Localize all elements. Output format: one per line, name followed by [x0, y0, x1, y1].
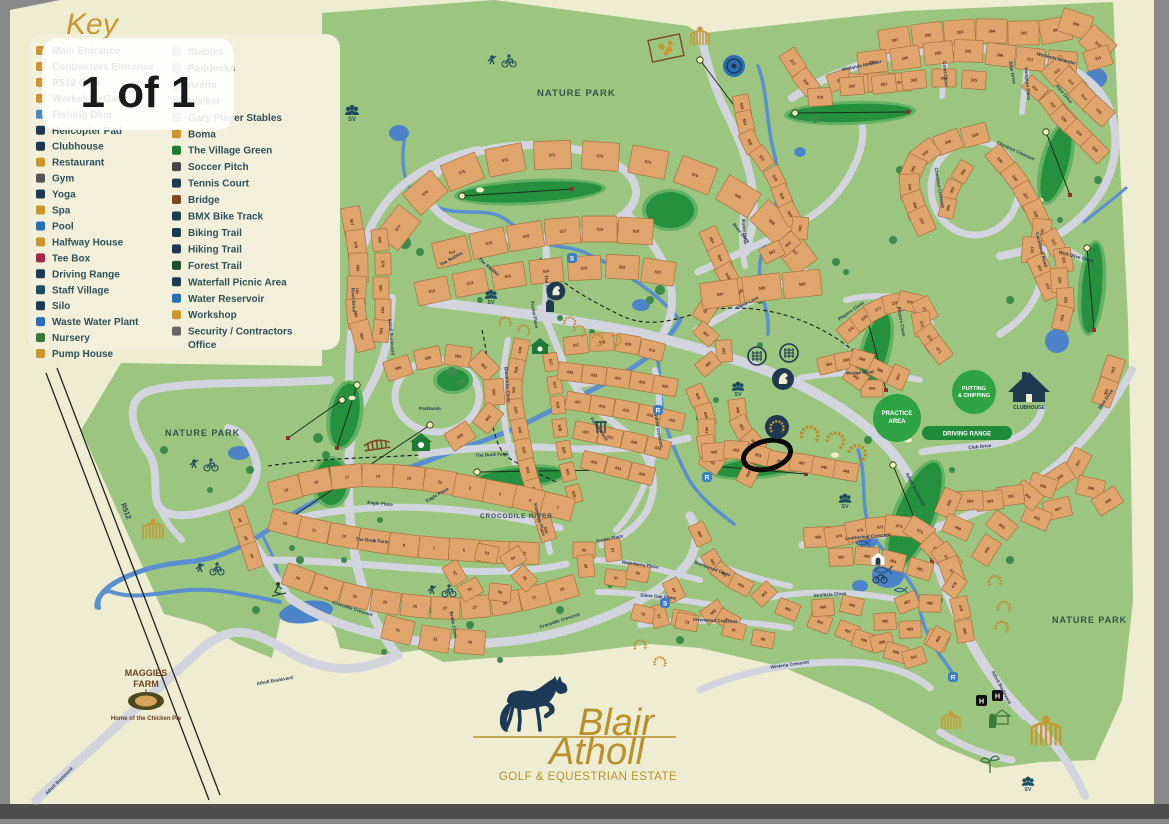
- svg-text:485: 485: [927, 600, 935, 605]
- svg-text:483: 483: [863, 553, 871, 559]
- svg-text:SV: SV: [348, 117, 356, 123]
- svg-text:Gym: Gym: [52, 174, 74, 185]
- svg-text:The Village Green: The Village Green: [188, 146, 272, 157]
- svg-text:517: 517: [559, 228, 567, 234]
- svg-text:490: 490: [882, 618, 890, 623]
- svg-text:319: 319: [817, 94, 825, 99]
- svg-text:R: R: [656, 408, 661, 415]
- svg-text:& CHIPPING: & CHIPPING: [958, 393, 990, 399]
- svg-text:Yoga: Yoga: [52, 190, 76, 201]
- svg-text:392: 392: [721, 347, 727, 355]
- svg-text:563: 563: [378, 327, 384, 335]
- svg-text:325: 325: [970, 77, 978, 83]
- svg-text:DRIVING RANGE: DRIVING RANGE: [943, 432, 991, 438]
- svg-text:Security / Contractors: Security / Contractors: [188, 327, 293, 338]
- svg-text:445: 445: [710, 449, 718, 455]
- svg-text:522: 522: [619, 264, 627, 269]
- svg-text:H: H: [995, 694, 1000, 701]
- svg-text:Forest Trail: Forest Trail: [188, 261, 242, 272]
- svg-text:582: 582: [379, 285, 384, 292]
- svg-text:SV: SV: [841, 504, 849, 510]
- svg-text:482: 482: [838, 554, 846, 559]
- svg-text:PUTTING: PUTTING: [962, 386, 986, 392]
- svg-text:Biking Trail: Biking Trail: [188, 228, 242, 239]
- svg-text:1 of 1: 1 of 1: [81, 68, 196, 117]
- svg-text:536: 536: [512, 387, 517, 394]
- svg-text:NATURE PARK: NATURE PARK: [1052, 615, 1127, 625]
- svg-text:Hiking Trail: Hiking Trail: [188, 244, 242, 255]
- svg-text:Office: Office: [188, 340, 217, 351]
- svg-text:Halfway House: Halfway House: [52, 237, 124, 248]
- svg-text:Parklands: Parklands: [419, 406, 441, 411]
- svg-text:331: 331: [1029, 246, 1034, 254]
- svg-text:MAGGIES: MAGGIES: [125, 668, 168, 678]
- svg-text:Pump House: Pump House: [52, 349, 114, 360]
- svg-text:518: 518: [597, 227, 604, 232]
- svg-text:583: 583: [381, 307, 386, 314]
- svg-text:344: 344: [907, 184, 912, 192]
- svg-text:S: S: [570, 256, 575, 263]
- svg-text:R: R: [951, 675, 956, 682]
- svg-text:NATURE PARK: NATURE PARK: [165, 428, 240, 438]
- svg-text:579: 579: [380, 261, 385, 269]
- svg-text:324: 324: [1057, 277, 1062, 285]
- svg-text:59: 59: [582, 548, 587, 553]
- svg-text:SV: SV: [487, 300, 495, 306]
- svg-text:305: 305: [965, 48, 973, 53]
- svg-text:Silo: Silo: [52, 301, 70, 312]
- svg-text:441: 441: [704, 427, 709, 435]
- svg-text:Waste Water Plant: Waste Water Plant: [52, 317, 139, 328]
- svg-text:Nursery: Nursery: [52, 333, 90, 344]
- svg-text:Home of the Chicken Pie: Home of the Chicken Pie: [111, 716, 182, 722]
- svg-text:Boma: Boma: [188, 129, 216, 140]
- svg-text:Tee Box: Tee Box: [52, 253, 91, 264]
- svg-text:Workshop: Workshop: [188, 310, 237, 321]
- svg-text:523: 523: [581, 265, 589, 270]
- svg-text:364: 364: [989, 28, 997, 33]
- svg-text:580: 580: [355, 265, 360, 273]
- svg-text:Spa: Spa: [52, 206, 71, 217]
- svg-text:489: 489: [907, 626, 915, 631]
- svg-text:452: 452: [732, 447, 740, 453]
- svg-text:SV: SV: [1024, 787, 1032, 793]
- svg-text:Pool: Pool: [52, 221, 74, 232]
- svg-text:Water Reservoir: Water Reservoir: [188, 294, 264, 305]
- svg-text:573: 573: [549, 152, 557, 157]
- svg-text:486: 486: [819, 604, 827, 610]
- svg-text:GOLF & EQUESTRIAN ESTATE: GOLF & EQUESTRIAN ESTATE: [499, 771, 677, 783]
- svg-text:SV: SV: [734, 392, 742, 398]
- svg-text:Soccer Pitch: Soccer Pitch: [188, 162, 249, 173]
- svg-text:AREA: AREA: [888, 419, 906, 425]
- svg-text:PRACTICE: PRACTICE: [882, 411, 913, 417]
- svg-text:Bridge: Bridge: [188, 195, 220, 206]
- svg-text:BMX Bike Track: BMX Bike Track: [188, 212, 263, 223]
- svg-text:572: 572: [596, 153, 604, 159]
- svg-text:Key: Key: [66, 8, 120, 41]
- svg-text:R: R: [705, 475, 710, 482]
- svg-text:NATURE PARK: NATURE PARK: [537, 88, 616, 99]
- svg-text:303: 303: [956, 29, 964, 35]
- svg-text:FARM: FARM: [133, 679, 159, 689]
- svg-text:Staff Village: Staff Village: [52, 285, 109, 296]
- svg-text:384: 384: [967, 498, 975, 503]
- svg-text:Clubhouse: Clubhouse: [52, 142, 104, 153]
- svg-text:300: 300: [848, 83, 856, 89]
- svg-text:353: 353: [1063, 297, 1068, 305]
- svg-text:Tennis Court: Tennis Court: [188, 179, 250, 190]
- svg-text:Driving Range: Driving Range: [52, 269, 120, 280]
- svg-text:561: 561: [797, 224, 803, 232]
- svg-text:592: 592: [491, 388, 497, 396]
- svg-text:307: 307: [1021, 30, 1029, 35]
- svg-text:Restaurant: Restaurant: [52, 158, 105, 169]
- svg-text:H: H: [979, 699, 984, 706]
- svg-text:Atholl: Atholl: [547, 731, 646, 773]
- svg-text:S: S: [663, 601, 668, 608]
- svg-text:366: 366: [869, 386, 876, 391]
- svg-text:469: 469: [815, 534, 823, 539]
- svg-text:Waterfall Picnic Area: Waterfall Picnic Area: [188, 277, 287, 288]
- svg-text:519: 519: [633, 228, 641, 233]
- svg-text:CLUBHOUSE: CLUBHOUSE: [1013, 405, 1045, 411]
